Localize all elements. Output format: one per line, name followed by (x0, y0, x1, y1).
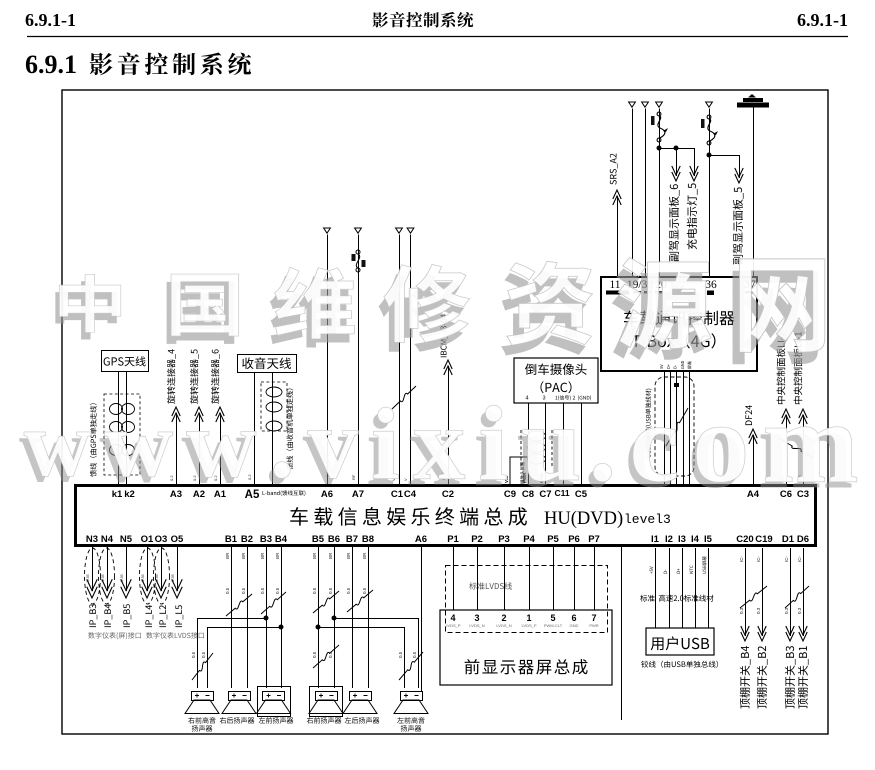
svg-text:0.5: 0.5 (346, 587, 351, 594)
svg-text:m: m (763, 379, 859, 507)
svg-text:7: 7 (591, 613, 596, 623)
svg-text:0.5: 0.5 (312, 587, 317, 594)
svg-text:6: 6 (571, 613, 576, 623)
svg-text:LVDS_P: LVDS_P (521, 623, 536, 628)
svg-text:B7: B7 (346, 534, 358, 545)
svg-text:B1: B1 (225, 534, 238, 545)
svg-text:5: 5 (550, 613, 555, 623)
svg-text:P7: P7 (588, 534, 600, 545)
svg-text:0.3: 0.3 (784, 607, 789, 614)
svg-text:BR: BR (312, 552, 317, 559)
svg-text:0.5: 0.5 (191, 651, 196, 658)
svg-text:0.35: 0.35 (170, 573, 175, 582)
svg-text:D6: D6 (797, 534, 809, 545)
svg-text:IC-: IC- (784, 556, 789, 563)
svg-text:B2: B2 (241, 534, 253, 545)
svg-text:A6: A6 (415, 534, 427, 545)
svg-text:O1: O1 (141, 534, 154, 545)
svg-text:0.5: 0.5 (412, 651, 417, 658)
svg-text:BR: BR (362, 552, 367, 559)
svg-text:B5: B5 (312, 534, 325, 545)
svg-text:x: x (413, 385, 465, 501)
svg-text:u: u (521, 384, 581, 503)
svg-text:HU(DVD): HU(DVD) (544, 509, 623, 529)
svg-text:BR: BR (260, 552, 265, 559)
svg-text:I2: I2 (665, 534, 673, 545)
svg-text:w: w (186, 390, 256, 497)
svg-text:P6: P6 (568, 534, 580, 545)
svg-text:0.5: 0.5 (312, 651, 317, 658)
svg-text:LVDS_P: LVDS_P (445, 623, 460, 628)
svg-text:0.5: 0.5 (362, 587, 367, 594)
svg-text:w: w (105, 392, 173, 497)
svg-text:0.35: 0.35 (140, 573, 145, 582)
svg-text:N3: N3 (86, 534, 98, 545)
svg-text:6.9.1: 6.9.1 (25, 50, 77, 79)
svg-text:.: . (270, 390, 295, 499)
svg-text:C19: C19 (755, 534, 772, 545)
svg-text:B3: B3 (260, 534, 272, 545)
svg-text:P1: P1 (447, 534, 459, 545)
svg-text:BR: BR (225, 552, 230, 559)
svg-text:LVDS_N: LVDS_N (469, 623, 484, 628)
svg-text:level3: level3 (624, 512, 671, 527)
svg-text:IC-: IC- (756, 556, 761, 563)
svg-text:LVDS_N: LVDS_N (496, 623, 511, 628)
svg-text:w: w (24, 393, 91, 496)
svg-text:B6: B6 (328, 534, 340, 545)
svg-text:BR: BR (346, 552, 351, 559)
svg-text:2: 2 (501, 613, 506, 623)
svg-text:3: 3 (474, 613, 479, 623)
svg-text:o: o (692, 380, 749, 506)
svg-text:C20: C20 (736, 534, 753, 545)
svg-text:0.35: 0.35 (85, 573, 90, 582)
svg-text:IC-: IC- (797, 556, 802, 563)
svg-text:0.5: 0.5 (241, 587, 246, 594)
svg-text:0.35: 0.35 (119, 573, 124, 582)
svg-text:.: . (589, 382, 616, 504)
svg-text:1: 1 (526, 613, 531, 623)
svg-text:GND: GND (570, 623, 579, 628)
svg-text:0.5: 0.5 (398, 651, 403, 658)
svg-text:0.3: 0.3 (739, 607, 744, 614)
svg-text:i: i (371, 388, 399, 501)
svg-text:PWM-CLT: PWM-CLT (544, 623, 563, 628)
svg-text:0.35: 0.35 (154, 573, 159, 582)
svg-text:I1: I1 (651, 534, 660, 545)
svg-text:O3: O3 (155, 534, 168, 545)
svg-text:BR: BR (241, 552, 246, 559)
svg-text:I4: I4 (691, 534, 700, 545)
svg-text:6.9.1-1: 6.9.1-1 (25, 10, 76, 30)
svg-text:I3: I3 (678, 534, 686, 545)
svg-text:0.5: 0.5 (225, 587, 230, 594)
svg-text:P4: P4 (523, 534, 535, 545)
svg-text:4: 4 (450, 613, 455, 623)
svg-text:P3: P3 (498, 534, 510, 545)
svg-text:36: 36 (705, 279, 717, 291)
svg-text:P2: P2 (471, 534, 483, 545)
svg-text:6.9.1-1: 6.9.1-1 (797, 10, 848, 30)
svg-text:IC-: IC- (739, 556, 744, 563)
svg-text:0.5: 0.5 (260, 587, 265, 594)
svg-text:i: i (479, 385, 508, 502)
svg-text:11: 11 (609, 279, 620, 291)
svg-text:N4: N4 (101, 534, 114, 545)
svg-text:O5: O5 (171, 534, 184, 545)
svg-text:PWR: PWR (589, 623, 598, 628)
svg-text:B4: B4 (275, 534, 288, 545)
svg-text:0.3: 0.3 (756, 607, 761, 614)
svg-text:0.5: 0.5 (328, 587, 333, 594)
svg-text:N5: N5 (120, 534, 133, 545)
svg-text:B8: B8 (362, 534, 374, 545)
svg-text:v: v (308, 388, 359, 499)
svg-text:BR: BR (275, 552, 280, 559)
svg-text:c: c (630, 383, 680, 506)
svg-text:0.5: 0.5 (201, 651, 206, 658)
svg-text:D1: D1 (782, 534, 795, 545)
svg-text:0.35: 0.35 (100, 573, 105, 582)
svg-text:BR: BR (328, 552, 333, 559)
svg-text:I5: I5 (704, 534, 713, 545)
svg-text:0.3: 0.3 (797, 607, 802, 614)
svg-text:0.5: 0.5 (275, 587, 280, 594)
svg-text:P5: P5 (547, 534, 559, 545)
